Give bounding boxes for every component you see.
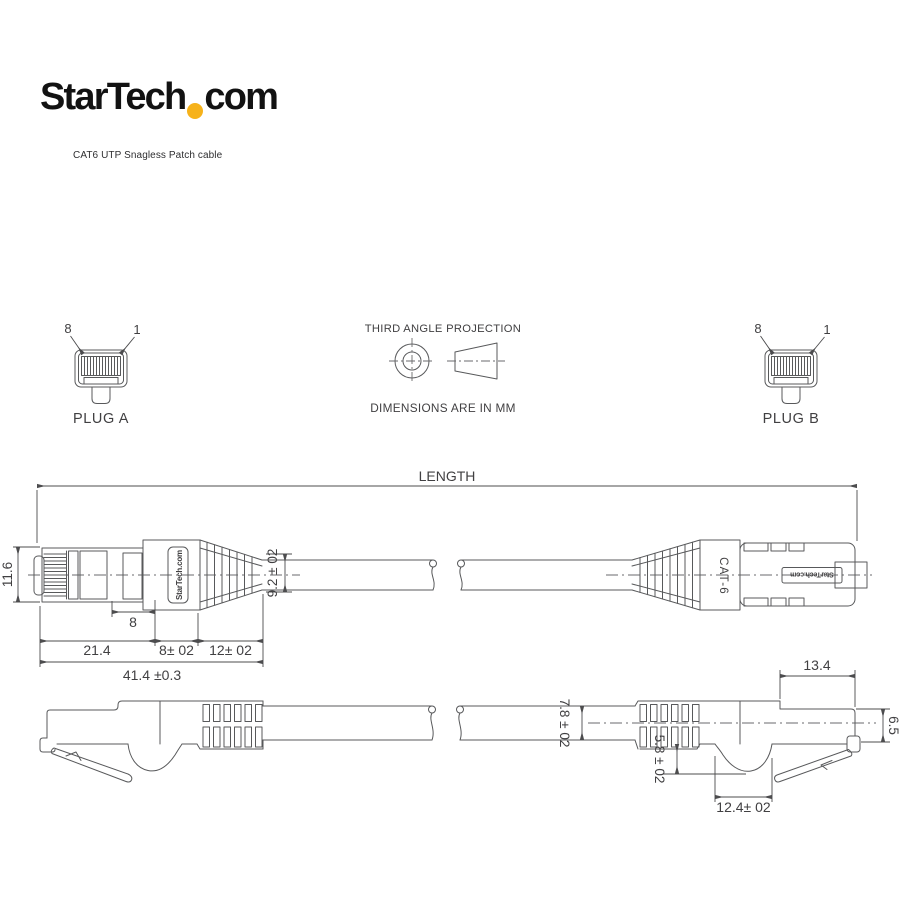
seg-12-label: 12± 02 — [209, 642, 252, 658]
left-side-boot-slots — [203, 705, 262, 748]
side-cable-break-left — [431, 713, 433, 740]
boot-slot — [693, 705, 700, 722]
plug-a-inner-shell — [79, 353, 124, 384]
boot-slot — [214, 705, 221, 722]
plug-a-contacts — [85, 357, 118, 376]
side-cable-break-loop-left — [429, 706, 436, 713]
latch-depth-label: 5.8 ± 02 — [652, 735, 667, 784]
plug-a-pin8-label: 8 — [64, 321, 71, 336]
side-cable-break-right — [459, 713, 461, 740]
plug-b-pin1-leader — [811, 337, 825, 354]
left-plug-contacts — [44, 551, 67, 599]
right-boot-cat6-print: CAT-6 — [717, 557, 729, 595]
cable-break-right — [460, 567, 462, 590]
plug-b-label: PLUG B — [763, 411, 820, 427]
height-11-6-extensions — [13, 547, 40, 602]
right-side-latch-blade — [775, 750, 852, 783]
cable-top-view: StarTech.com CAT-6 — [0, 468, 872, 683]
side-cable-break-loop-right — [457, 706, 464, 713]
right-body-print: StarTech.com — [790, 571, 833, 578]
plug-a-pin1-label: 1 — [133, 322, 140, 337]
side-view-right-connector — [635, 701, 860, 782]
overall-41-4-label: 41.4 ±0.3 — [123, 667, 181, 683]
boot-slot — [214, 727, 221, 747]
right-plug-top-detail-1 — [744, 543, 768, 551]
seg-21-4-label: 21.4 — [83, 642, 110, 658]
cable-break-loop-left — [430, 560, 437, 567]
boot-slot — [256, 727, 263, 747]
technical-drawing: 8 1 PLUG A THIRD ANGLE PROJECTION DIMENS… — [0, 0, 900, 900]
plug-b-boot-tab — [782, 387, 800, 404]
seg-8-label: 8± 02 — [159, 642, 194, 658]
left-side-nose — [40, 738, 55, 752]
third-angle-projection: THIRD ANGLE PROJECTION DIMENSIONS ARE IN… — [365, 323, 521, 415]
cable-break-loop-right — [458, 560, 465, 567]
boot-slot — [203, 705, 210, 722]
plug-a-cable-window — [84, 378, 118, 385]
plug-b-pin1-label: 1 — [823, 322, 830, 337]
side-cable-right-segment — [460, 706, 635, 740]
projection-crosshair — [389, 338, 435, 384]
right-plug-top-detail-3 — [789, 543, 804, 551]
recess-12-4-label: 12.4± 02 — [716, 799, 771, 815]
right-plug-bottom-detail-3 — [789, 598, 804, 606]
boot-slot — [224, 727, 231, 747]
plug-len-13-4-label: 13.4 — [803, 657, 830, 673]
side-view-left-connector — [40, 701, 263, 782]
side-view-cable — [263, 706, 635, 740]
plug-b-front-view: 8 1 PLUG B — [754, 321, 830, 427]
left-side-latch-recess — [128, 744, 263, 771]
projection-title: THIRD ANGLE PROJECTION — [365, 323, 521, 335]
boot-slot — [640, 705, 647, 722]
recess-extensions — [715, 756, 772, 802]
boot-slot — [256, 705, 263, 722]
drawing-sheet: StarTech com CAT6 UTP Snagless Patch cab… — [0, 0, 900, 900]
plug-height-6-5-label: 6.5 — [886, 716, 900, 735]
boot-slot — [245, 727, 252, 747]
cable-break-left — [432, 567, 434, 590]
boot-slot — [224, 705, 231, 722]
right-plug-bottom-detail-2 — [771, 598, 786, 606]
plug-a-label: PLUG A — [73, 411, 129, 427]
left-side-latch-blade — [51, 748, 132, 782]
right-side-boot-slots — [640, 705, 699, 748]
boot-slot — [235, 727, 242, 747]
boot-slot — [640, 727, 647, 747]
plug-b-outer-shell — [765, 350, 817, 387]
plug-height-extensions — [856, 709, 890, 742]
top-view-cable — [262, 560, 632, 590]
right-plug-top-detail-2 — [771, 543, 786, 551]
od-7-8-label: 7.8 ± 02 — [557, 699, 572, 748]
od-9-2-label: 9.2 ± 02 — [265, 549, 280, 598]
right-plug-bottom-detail-1 — [744, 598, 768, 606]
boot-slot — [672, 705, 679, 722]
plug-b-cable-window — [774, 378, 808, 385]
latch-8-label: 8 — [129, 614, 137, 630]
boot-slot — [693, 727, 700, 747]
side-cable-left-segment — [263, 706, 432, 740]
boot-slot — [245, 705, 252, 722]
left-boot-print: StarTech.com — [175, 550, 184, 600]
boot-slot — [682, 705, 689, 722]
boot-slot — [235, 705, 242, 722]
boot-slot — [661, 705, 668, 722]
plug-b-pin8-label: 8 — [754, 321, 761, 336]
boot-slot — [682, 727, 689, 747]
length-dimension-label: LENGTH — [419, 468, 476, 484]
boot-slot — [651, 705, 658, 722]
length-extension-lines — [37, 490, 857, 543]
plug-a-front-view: 8 1 PLUG A — [64, 321, 140, 427]
left-plug-latch-window — [123, 553, 142, 599]
plug-a-boot-tab — [92, 387, 110, 404]
plug-b-inner-shell — [769, 353, 814, 384]
height-11-6-label: 11.6 — [0, 562, 15, 587]
left-side-junction-lines — [160, 701, 263, 749]
plug-a-outer-shell — [75, 350, 127, 387]
boot-slot — [203, 727, 210, 747]
plug-a-pin1-leader — [121, 337, 135, 354]
units-note: DIMENSIONS ARE IN MM — [370, 401, 516, 415]
plug-b-contacts — [775, 357, 808, 376]
